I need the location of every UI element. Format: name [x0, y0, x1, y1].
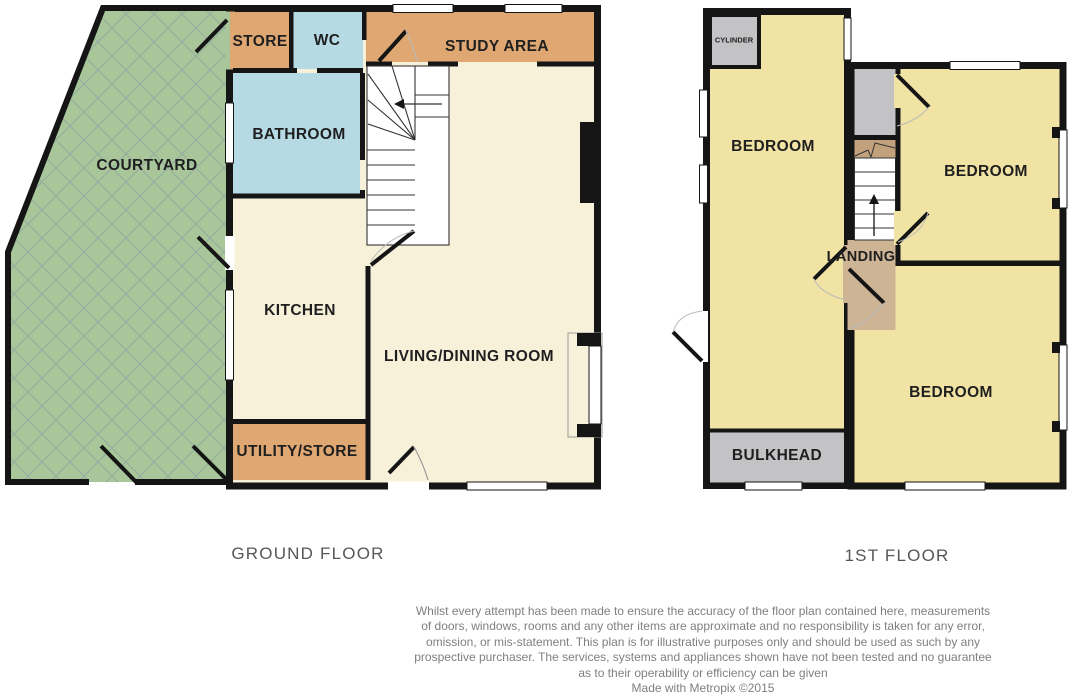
- disclaimer-line: prospective purchaser. The services, sys…: [393, 650, 1013, 665]
- room-label-living-dining: LIVING/DINING ROOM: [384, 348, 554, 366]
- metropix-credit: Made with Metropix ©2015: [393, 681, 1013, 696]
- disclaimer-line: omission, or mis-statement. This plan is…: [393, 635, 1013, 650]
- room-label-study-area: STUDY AREA: [445, 38, 549, 56]
- room-label-bedroom-bottom-right: BEDROOM: [909, 384, 993, 402]
- room-label-utility-store: UTILITY/STORE: [236, 443, 357, 461]
- ground-floor-title: GROUND FLOOR: [231, 544, 384, 564]
- chimney-breast: [580, 122, 601, 203]
- floorplan-page: COURTYARD STORE WC STUDY AREA BATHROOM K…: [0, 0, 1080, 699]
- stair-void: [855, 69, 896, 135]
- room-label-cylinder: CYLINDER: [715, 36, 753, 45]
- ground-floor-staircase: [367, 66, 449, 245]
- room-label-bedroom-left: BEDROOM: [731, 138, 815, 156]
- disclaimer-line: Whilst every attempt has been made to en…: [393, 604, 1013, 619]
- room-label-courtyard: COURTYARD: [96, 157, 197, 175]
- first-floor-title: 1ST FLOOR: [845, 546, 950, 566]
- room-label-kitchen: KITCHEN: [264, 302, 336, 320]
- disclaimer-line: as to their operability or efficiency ca…: [393, 666, 1013, 681]
- courtyard-area: [8, 8, 230, 483]
- room-label-store: STORE: [232, 33, 287, 51]
- disclaimer: Whilst every attempt has been made to en…: [393, 604, 1013, 696]
- room-label-bulkhead: BULKHEAD: [732, 447, 822, 465]
- room-label-landing: LANDING: [827, 249, 896, 265]
- disclaimer-line: of doors, windows, rooms and any other i…: [393, 619, 1013, 634]
- bay-window: [568, 333, 602, 437]
- room-label-wc: WC: [314, 32, 341, 50]
- room-label-bathroom: BATHROOM: [252, 126, 345, 144]
- ground-floor-plan: [8, 5, 602, 491]
- room-label-bedroom-top-right: BEDROOM: [944, 163, 1028, 181]
